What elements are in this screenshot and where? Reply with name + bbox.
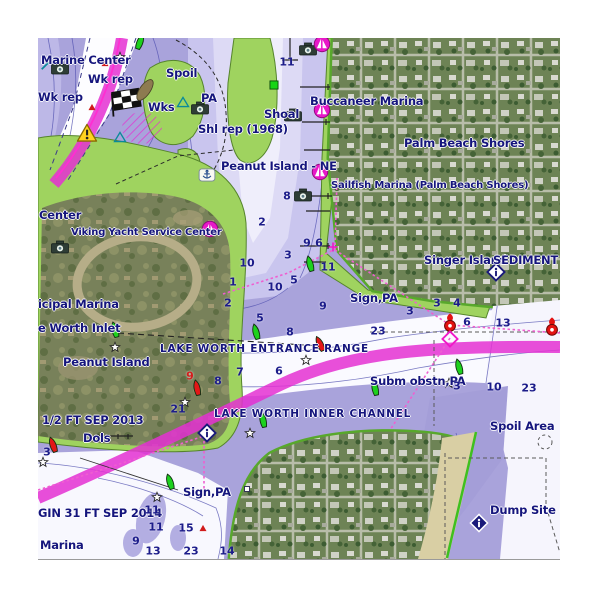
depth-sounding: 13	[145, 546, 160, 557]
label-subm-obstn: Subm obstn,PA	[370, 376, 465, 388]
label-municipal-marina: icipal Marina	[38, 299, 119, 311]
depth-sounding: 8	[283, 191, 291, 202]
depth-sounding: 3	[284, 250, 292, 261]
label-buccaneer-marina: Buccaneer Marina	[310, 96, 423, 108]
depth-sounding: 21	[170, 404, 185, 415]
depth-sounding: 4	[453, 298, 461, 309]
depth-sounding: 5	[290, 275, 298, 286]
label-spoil: Spoil	[166, 68, 197, 80]
label-inner-channel: LAKE WORTH INNER CHANNEL	[214, 409, 411, 420]
depth-sounding: 23	[183, 546, 198, 557]
depth-sounding: 11	[279, 57, 294, 68]
depth-sounding: 14	[219, 546, 234, 557]
depth-sounding: 8	[286, 327, 294, 338]
depth-sounding: 3	[433, 298, 441, 309]
depth-sounding: 7	[236, 367, 244, 378]
label-sign-pa-2: Sign,PA	[183, 487, 231, 499]
label-shoal: Shoal	[264, 109, 299, 121]
depth-sounding: 6	[315, 238, 323, 249]
depth-sounding: 23	[521, 383, 536, 394]
depth-sounding: 6	[463, 317, 471, 328]
depth-sounding: 10	[267, 282, 282, 293]
label-wk-rep-2: Wk rep	[38, 92, 83, 104]
chart-viewport[interactable]: Marine CenterWk repWk repSpoilWksPAShl r…	[38, 38, 560, 560]
label-peanut-island: Peanut Island	[63, 357, 150, 369]
label-viking-yacht: Viking Yacht Service Center	[71, 228, 222, 238]
depth-sounding: 9	[303, 238, 311, 249]
depth-sounding: 2	[224, 298, 232, 309]
labels-layer: Marine CenterWk repWk repSpoilWksPAShl r…	[38, 38, 560, 559]
label-sediment: SEDIMENT	[493, 255, 558, 267]
label-pa: PA	[201, 93, 217, 105]
depth-sounding: 11	[320, 262, 335, 273]
label-sailfish-marina: Sailfish Marina (Palm Beach Shores)	[331, 181, 528, 191]
label-worth-inlet: e Worth Inlet	[38, 323, 120, 335]
depth-sounding: 5	[256, 313, 264, 324]
label-wk-rep-1: Wk rep	[88, 74, 133, 86]
label-center-truncated: Center	[39, 210, 81, 222]
label-marina: Marina	[40, 540, 84, 552]
depth-sounding: 8	[214, 376, 222, 387]
label-dols: Dols	[83, 433, 110, 445]
depth-sounding: 3	[453, 381, 461, 392]
depth-sounding: 11	[144, 505, 159, 516]
label-shl-rep: Shl rep (1968)	[198, 124, 288, 136]
depth-sounding: 3	[43, 447, 51, 458]
depth-sounding: 2	[258, 217, 266, 228]
depth-sounding: 3	[406, 306, 414, 317]
depth-sounding: 15	[178, 523, 193, 534]
depth-sounding: 6	[275, 366, 283, 377]
depth-sounding: 23	[370, 326, 385, 337]
depth-sounding: 9	[319, 301, 327, 312]
label-dump-site: Dump Site (di	[490, 505, 560, 517]
label-marine-center: Marine Center	[41, 55, 131, 67]
label-palm-beach-shores: Palm Beach Shores	[404, 138, 524, 150]
depth-sounding: 1	[229, 277, 237, 288]
depth-sounding: 13	[495, 318, 510, 329]
label-sep-2013: 1/2 FT SEP 2013	[42, 415, 144, 427]
label-wks: Wks	[148, 102, 175, 114]
depth-sounding: 10	[239, 258, 254, 269]
label-sign-pa-1: Sign,PA	[350, 293, 398, 305]
depth-sounding: 10	[486, 382, 501, 393]
depth-sounding: 9	[132, 536, 140, 547]
label-spoil-area: Spoil Area	[490, 421, 554, 433]
depth-sounding: 9	[186, 371, 194, 382]
label-entrance-range: LAKE WORTH ENTRANCE RANGE	[160, 344, 369, 355]
depth-sounding: 11	[148, 522, 163, 533]
label-peanut-island-ne: Peanut Island - NE	[221, 161, 337, 173]
